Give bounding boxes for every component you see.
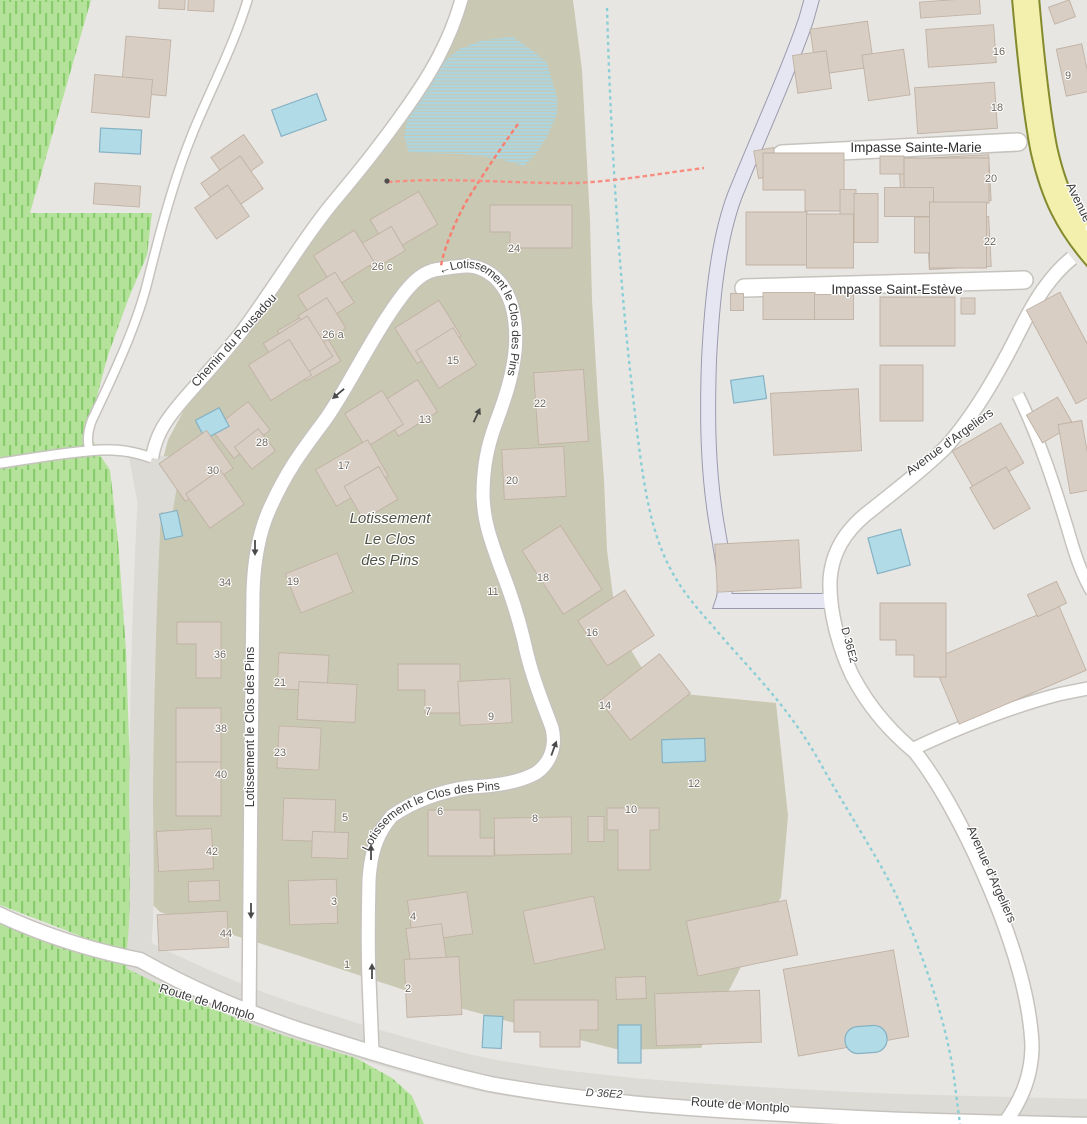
svg-text:44: 44	[220, 928, 232, 940]
svg-text:38: 38	[215, 723, 227, 735]
svg-text:21: 21	[274, 677, 286, 689]
svg-text:40: 40	[215, 769, 227, 781]
svg-text:18: 18	[537, 572, 549, 584]
svg-text:7: 7	[425, 706, 431, 718]
svg-text:16: 16	[993, 46, 1005, 58]
svg-text:Impasse Saint-Estève: Impasse Saint-Estève	[831, 282, 962, 297]
svg-text:12: 12	[688, 778, 700, 790]
svg-text:20: 20	[985, 173, 997, 185]
svg-text:6: 6	[437, 806, 443, 818]
svg-text:9: 9	[1065, 70, 1071, 82]
svg-text:16: 16	[586, 627, 598, 639]
svg-text:23: 23	[274, 747, 286, 759]
svg-text:Le Clos: Le Clos	[365, 531, 416, 548]
svg-text:15: 15	[447, 355, 459, 367]
svg-text:22: 22	[534, 398, 546, 410]
svg-text:18: 18	[991, 102, 1003, 114]
svg-text:10: 10	[625, 804, 637, 816]
svg-text:2: 2	[405, 983, 411, 995]
svg-text:42: 42	[206, 846, 218, 858]
svg-text:22: 22	[984, 236, 996, 248]
svg-text:des Pins: des Pins	[361, 552, 419, 569]
svg-text:1: 1	[344, 959, 350, 971]
svg-text:Impasse Sainte-Marie: Impasse Sainte-Marie	[850, 140, 981, 155]
svg-text:24: 24	[508, 243, 520, 255]
svg-text:3: 3	[331, 896, 337, 908]
svg-text:11: 11	[487, 586, 498, 598]
svg-text:9: 9	[488, 711, 494, 723]
svg-text:13: 13	[419, 414, 431, 426]
svg-text:20: 20	[506, 475, 518, 487]
svg-text:14: 14	[599, 700, 611, 712]
svg-text:26 c: 26 c	[372, 261, 393, 273]
svg-text:4: 4	[410, 911, 416, 923]
svg-text:30: 30	[207, 465, 219, 477]
svg-text:34: 34	[219, 577, 231, 589]
svg-text:Lotissement: Lotissement	[350, 510, 432, 527]
svg-text:26 a: 26 a	[322, 329, 344, 341]
svg-text:36: 36	[214, 649, 226, 661]
svg-text:D 36E2: D 36E2	[586, 1087, 623, 1101]
svg-text:17: 17	[338, 460, 350, 472]
svg-text:5: 5	[342, 812, 348, 824]
svg-text:28: 28	[256, 437, 268, 449]
svg-text:8: 8	[532, 813, 538, 825]
svg-text:Lotissement le Clos des Pins: Lotissement le Clos des Pins	[243, 647, 257, 808]
svg-text:19: 19	[287, 576, 299, 588]
